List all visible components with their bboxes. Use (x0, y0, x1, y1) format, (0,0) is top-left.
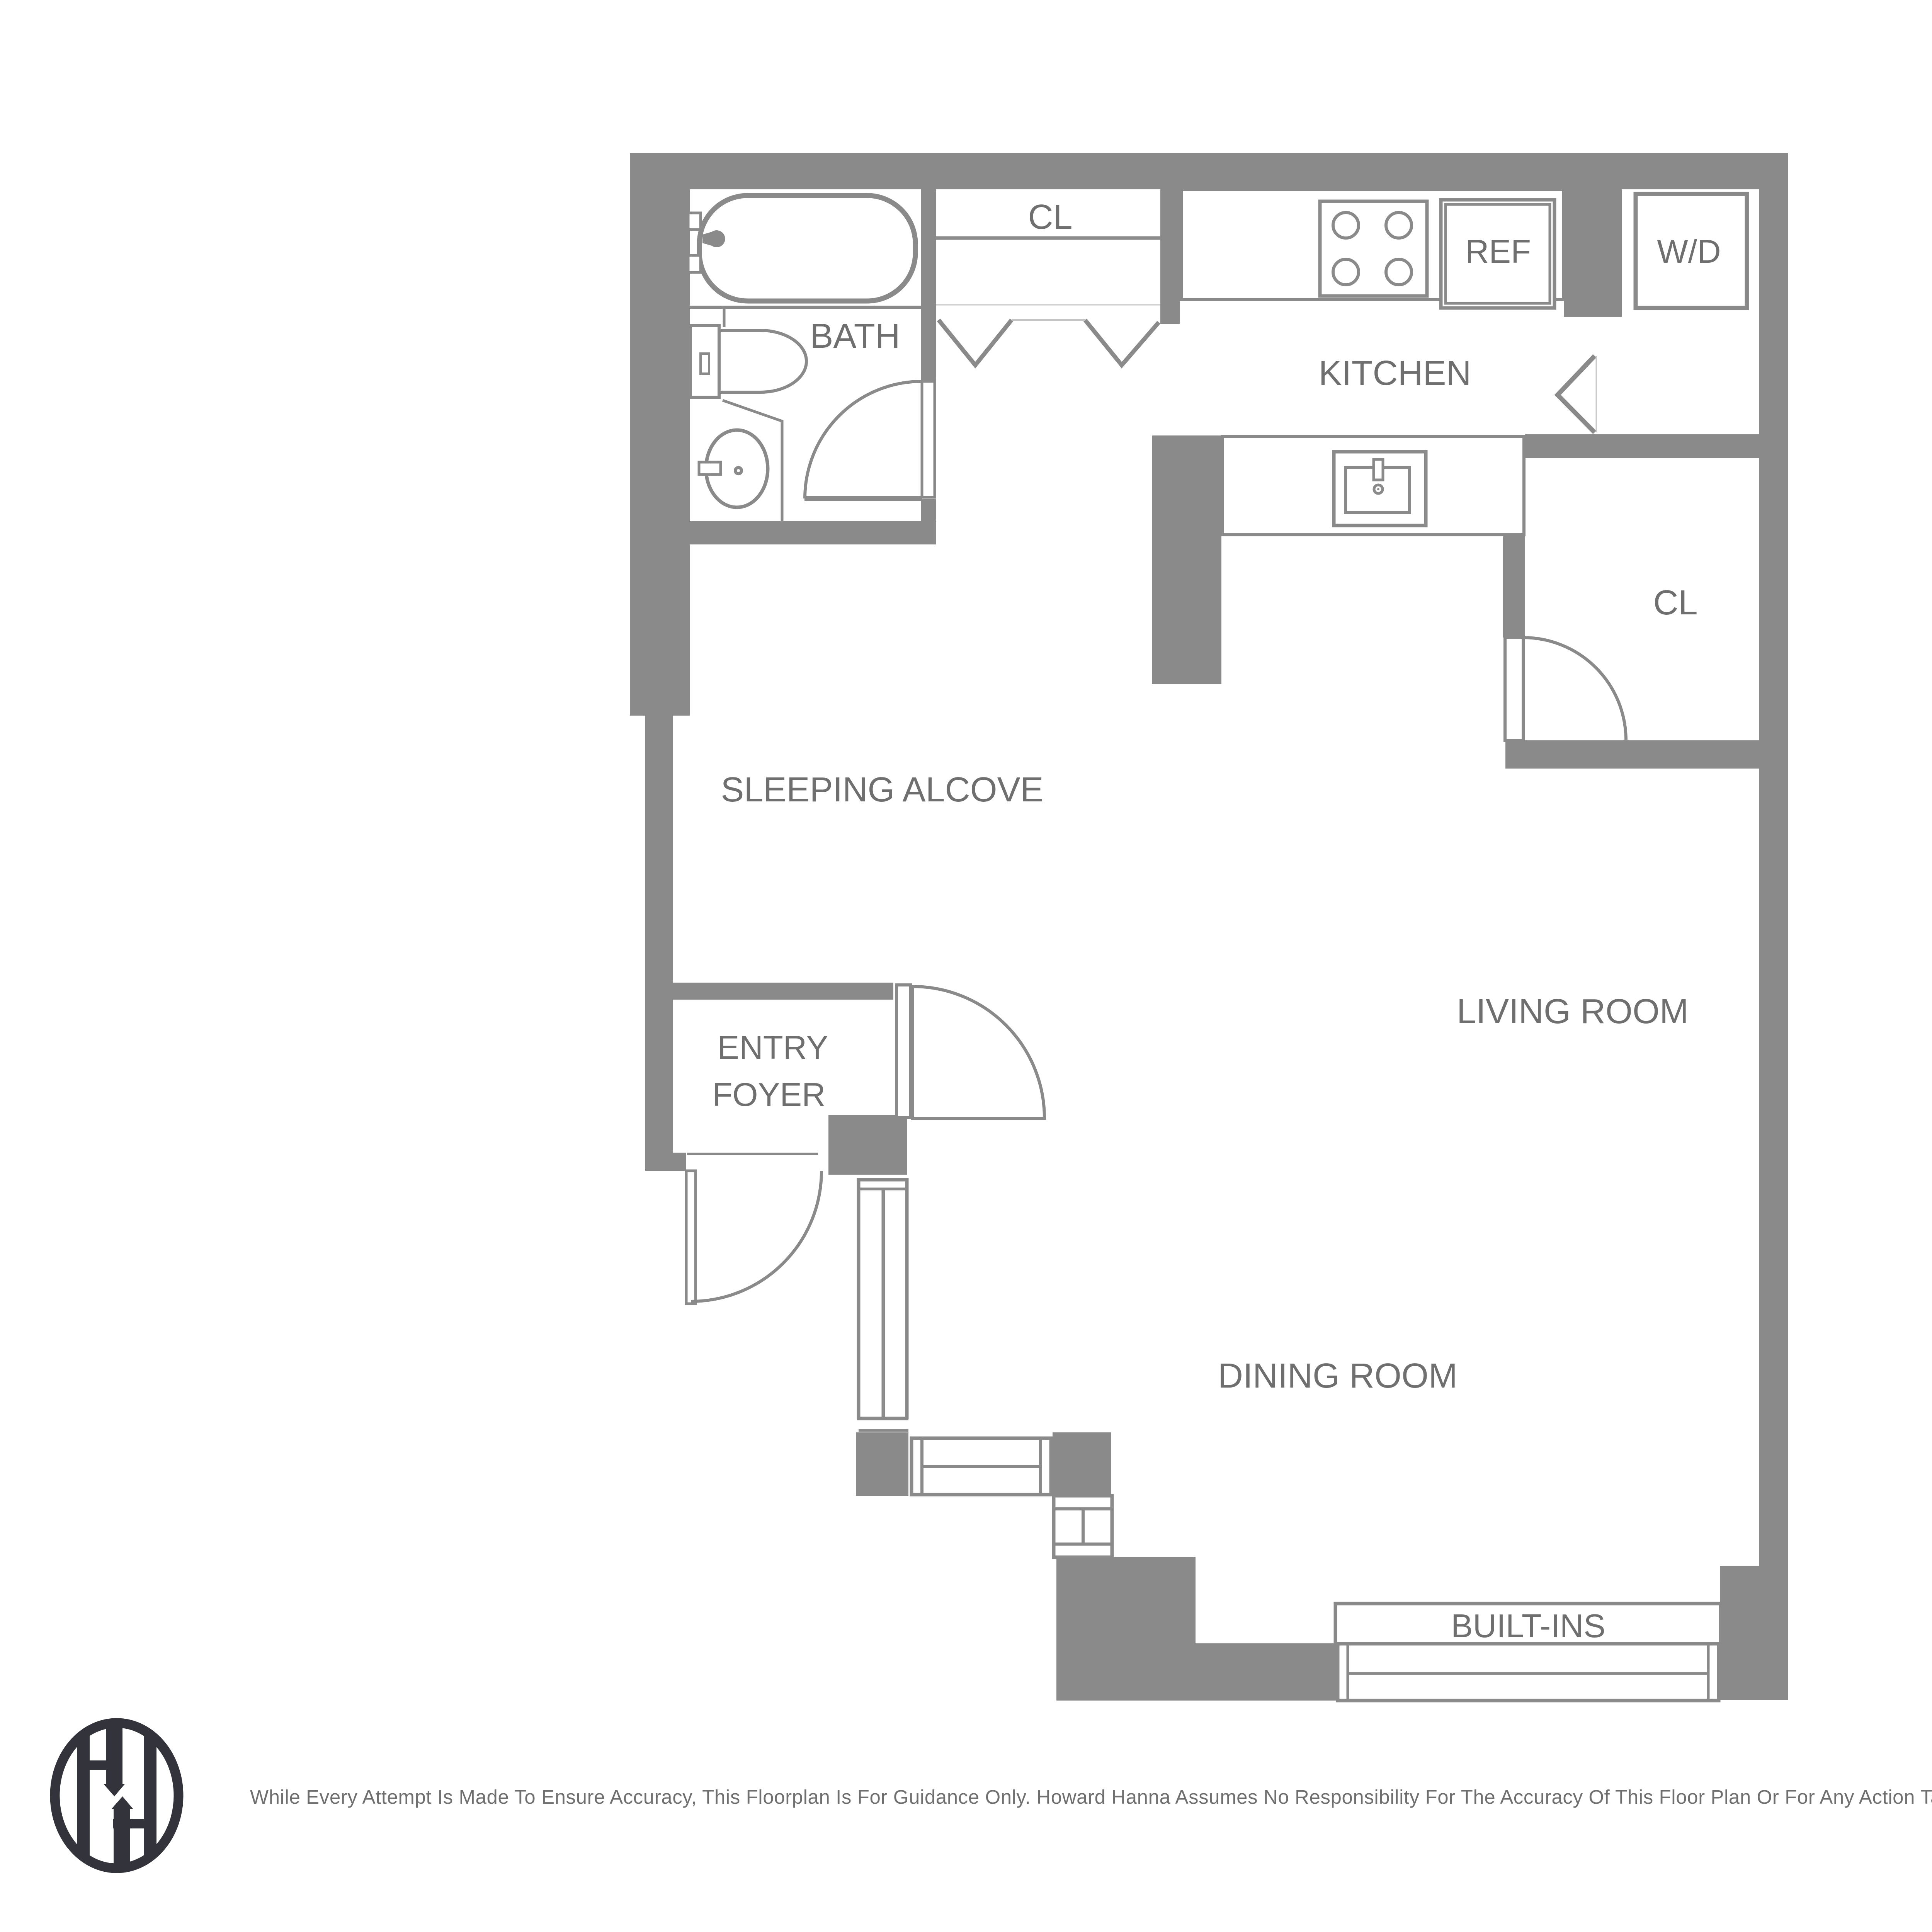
svg-text:KITCHEN: KITCHEN (1318, 354, 1471, 393)
svg-text:CL: CL (1028, 198, 1072, 236)
svg-text:DINING ROOM: DINING ROOM (1218, 1357, 1458, 1395)
svg-text:REF: REF (1465, 233, 1531, 270)
svg-text:LIVING ROOM: LIVING ROOM (1457, 992, 1689, 1031)
svg-text:CL: CL (1653, 583, 1697, 622)
svg-text:FOYER: FOYER (713, 1077, 826, 1113)
svg-text:ENTRY: ENTRY (718, 1029, 828, 1066)
svg-text:BUILT-INS: BUILT-INS (1451, 1608, 1605, 1645)
svg-text:SLEEPING ALCOVE: SLEEPING ALCOVE (721, 770, 1043, 809)
svg-text:BATH: BATH (810, 317, 900, 355)
svg-text:W/D: W/D (1657, 233, 1721, 270)
svg-text:While Every Attempt Is Made To: While Every Attempt Is Made To Ensure Ac… (250, 1786, 1932, 1808)
